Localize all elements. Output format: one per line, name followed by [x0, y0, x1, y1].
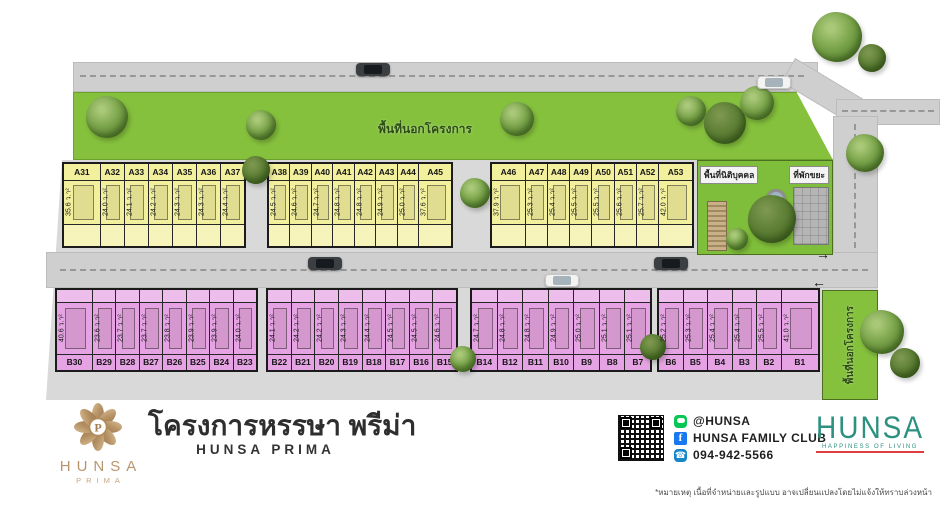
lot-id: B5: [684, 354, 708, 370]
lot-id: A46: [492, 164, 525, 181]
lot-B17[interactable]: 24.5 ว.า²B17: [385, 290, 409, 370]
lot-body: 23.6 ว.า²: [93, 303, 115, 354]
lot-driveway: [386, 290, 409, 303]
lot-area: 24.3 ว.า²: [173, 181, 183, 224]
lot-area: 24.5 ว.า²: [410, 303, 420, 354]
lot-body: 24.2 ว.า²: [292, 303, 315, 354]
lot-body: 42.0 ว.า²: [659, 181, 692, 224]
lot-A42[interactable]: A4224.8 ว.า²: [354, 164, 375, 246]
lot-driveway: [548, 224, 569, 246]
lot-B24[interactable]: 23.9 ว.า²B24: [209, 290, 232, 370]
car-icon: [308, 257, 342, 270]
lot-driveway: [163, 290, 185, 303]
lot-B29[interactable]: 23.6 ว.า²B29: [92, 290, 115, 370]
lot-area: 42.0 ว.า²: [659, 181, 669, 224]
lot-B19[interactable]: 24.3 ว.า²B19: [338, 290, 362, 370]
line-handle: @HUNSA: [693, 414, 750, 428]
lot-id: A40: [312, 164, 332, 181]
tree-icon: [246, 110, 276, 140]
lot-driveway: [570, 224, 591, 246]
outside-area-label-vertical: พื้นที่นอกโครงการ: [843, 306, 858, 384]
lot-body: 24.5 ว.า²: [410, 303, 433, 354]
line-icon: [674, 415, 687, 428]
lot-driveway: [64, 224, 100, 246]
lot-body: 24.8 ว.า²: [523, 303, 548, 354]
lot-area: 25.0 ว.า²: [574, 303, 584, 354]
lot-area: 24.6 ว.า²: [433, 303, 443, 354]
lot-body: 37.9 ว.า²: [492, 181, 525, 224]
lot-area: 41.0 ว.า²: [782, 303, 792, 354]
lot-area: 37.6 ว.า²: [419, 181, 429, 224]
tree-icon: [740, 86, 774, 120]
lot-A40[interactable]: A4024.7 ว.า²: [311, 164, 332, 246]
lot-id: A39: [290, 164, 310, 181]
lot-driveway: [625, 290, 650, 303]
lot-driveway: [101, 224, 124, 246]
lot-id: A47: [526, 164, 547, 181]
lot-area: 25.3 ว.า²: [684, 303, 694, 354]
lot-driveway: [116, 290, 138, 303]
lot-driveway: [292, 290, 315, 303]
lot-body: 25.0 ว.า²: [398, 181, 418, 224]
lot-driveway: [637, 224, 658, 246]
lot-driveway: [269, 224, 289, 246]
lot-group-b1: 40.6 ว.า²B3023.6 ว.า²B2923.7 ว.า²B2823.7…: [55, 288, 258, 372]
tree-icon: [858, 44, 886, 72]
tree-icon: [890, 348, 920, 378]
lot-id: B12: [498, 354, 523, 370]
lot-body: 35.6 ว.า²: [64, 181, 100, 224]
lot-A39[interactable]: A3924.6 ว.า²: [289, 164, 310, 246]
lot-body: 24.0 ว.า²: [234, 303, 256, 354]
brand-rule: [816, 451, 924, 453]
facebook-icon: f: [674, 432, 687, 445]
lot-area: 23.6 ว.า²: [93, 303, 103, 354]
lot-area: 25.4 ว.า²: [733, 303, 743, 354]
lot-area: 25.0 ว.า²: [398, 181, 408, 224]
lot-body: 24.7 ว.า²: [312, 181, 332, 224]
lot-B1[interactable]: 41.0 ว.า²B1: [781, 290, 818, 370]
lot-A51[interactable]: A5125.6 ว.า²: [614, 164, 636, 246]
lot-B12[interactable]: 24.8 ว.า²B12: [497, 290, 523, 370]
road-centerline: [60, 269, 868, 271]
lot-B28[interactable]: 23.7 ว.า²B28: [115, 290, 138, 370]
lot-id: A45: [419, 164, 451, 181]
lot-body: 25.4 ว.า²: [708, 303, 732, 354]
lot-area: 25.1 ว.า²: [600, 303, 610, 354]
lot-area: 24.7 ว.า²: [312, 181, 322, 224]
lot-area: 24.4 ว.า²: [363, 303, 373, 354]
lot-id: B20: [315, 354, 338, 370]
lot-id: B29: [93, 354, 115, 370]
lot-A32[interactable]: A3224.0 ว.า²: [100, 164, 124, 246]
lot-area: 25.5 ว.า²: [570, 181, 580, 224]
lot-body: 25.4 ว.า²: [733, 303, 757, 354]
lot-driveway: [523, 290, 548, 303]
lot-A44[interactable]: A4425.0 ว.า²: [397, 164, 418, 246]
lot-id: A36: [197, 164, 220, 181]
lot-body: 24.5 ว.า²: [386, 303, 409, 354]
lot-B23[interactable]: 24.0 ว.า²B23: [233, 290, 256, 370]
lot-driveway: [57, 290, 92, 303]
lot-driveway: [363, 290, 386, 303]
lot-A41[interactable]: A4124.8 ว.า²: [332, 164, 353, 246]
lot-id: A31: [64, 164, 100, 181]
lot-driveway: [757, 290, 781, 303]
lot-body: 24.9 ว.า²: [549, 303, 574, 354]
lot-area: 24.7 ว.า²: [472, 303, 482, 354]
road-centerline: [80, 75, 804, 77]
lot-A35[interactable]: A3524.3 ว.า²: [172, 164, 196, 246]
lot-driveway: [410, 290, 433, 303]
lot-body: 25.5 ว.า²: [570, 181, 591, 224]
top-road: [73, 62, 818, 92]
car-icon: [757, 76, 791, 89]
lot-driveway: [526, 224, 547, 246]
lot-body: 24.3 ว.า²: [197, 181, 220, 224]
lot-area: 23.9 ว.า²: [187, 303, 197, 354]
line-contact[interactable]: @HUNSA: [674, 414, 826, 428]
house-footprint-icon: [65, 308, 86, 349]
lot-B2[interactable]: 25.5 ว.า²B2: [756, 290, 781, 370]
lot-id: A44: [398, 164, 418, 181]
lot-id: B4: [708, 354, 732, 370]
phone-icon: ☎: [674, 449, 687, 462]
lot-area: 25.1 ว.า²: [625, 303, 635, 354]
lot-id: B3: [733, 354, 757, 370]
lot-driveway: [93, 290, 115, 303]
lot-body: 25.6 ว.า²: [615, 181, 636, 224]
lot-area: 24.9 ว.า²: [549, 303, 559, 354]
contact-list: @HUNSA f HUNSA FAMILY CLUB ☎ 094-942-556…: [674, 414, 826, 465]
lot-area: 24.0 ว.า²: [234, 303, 244, 354]
lot-body: 24.1 ว.า²: [125, 181, 148, 224]
lot-area: 23.9 ว.า²: [210, 303, 220, 354]
tree-icon: [242, 156, 270, 184]
lot-driveway: [782, 290, 818, 303]
lot-B30[interactable]: 40.6 ว.า²B30: [57, 290, 92, 370]
lot-driveway: [140, 290, 162, 303]
lot-B5[interactable]: 25.3 ว.า²B5: [683, 290, 708, 370]
lot-id: B27: [140, 354, 162, 370]
arrow-right-icon: →: [816, 247, 830, 261]
lot-area: 35.6 ว.า²: [64, 181, 74, 224]
hunsa-prima-logo: P HUNSA PRIMA: [52, 402, 144, 485]
lot-B18[interactable]: 24.4 ว.า²B18: [362, 290, 386, 370]
lot-body: 24.8 ว.า²: [333, 181, 353, 224]
lot-id: B6: [659, 354, 683, 370]
lot-id: B19: [339, 354, 362, 370]
garbage-pad: [793, 187, 829, 245]
lot-driveway: [659, 290, 683, 303]
lot-body: 24.8 ว.า²: [355, 181, 375, 224]
lot-id: B1: [782, 354, 818, 370]
lot-driveway: [574, 290, 599, 303]
lot-id: B18: [363, 354, 386, 370]
juristic-area-label: พื้นที่นิติบุคคล: [700, 166, 758, 184]
lot-id: B22: [268, 354, 291, 370]
lot-id: B23: [234, 354, 256, 370]
facebook-contact[interactable]: f HUNSA FAMILY CLUB: [674, 431, 826, 445]
lot-group-b2: 24.1 ว.า²B2224.2 ว.า²B2124.2 ว.า²B2024.3…: [266, 288, 458, 372]
lot-driveway: [472, 290, 497, 303]
qr-finder: [650, 417, 662, 429]
lot-area: 25.4 ว.า²: [548, 181, 558, 224]
lot-body: 24.2 ว.า²: [315, 303, 338, 354]
lot-B20[interactable]: 24.2 ว.า²B20: [314, 290, 338, 370]
lot-driveway: [615, 224, 636, 246]
lot-body: 24.0 ว.า²: [101, 181, 124, 224]
tree-icon: [704, 102, 746, 144]
tree-icon: [748, 195, 796, 243]
lot-area: 24.5 ว.า²: [386, 303, 396, 354]
lot-area: 24.2 ว.า²: [315, 303, 325, 354]
lot-area: 24.8 ว.า²: [355, 181, 365, 224]
lot-B10[interactable]: 24.9 ว.า²B10: [548, 290, 574, 370]
lot-area: 24.1 ว.า²: [125, 181, 135, 224]
lot-area: 24.9 ว.า²: [376, 181, 386, 224]
lot-A36[interactable]: A3624.3 ว.า²: [196, 164, 220, 246]
lot-B6[interactable]: 25.2 ว.า²B6: [659, 290, 683, 370]
phone-number: 094-942-5566: [693, 448, 774, 462]
lot-area: 25.6 ว.า²: [615, 181, 625, 224]
lot-A52[interactable]: A5225.7 ว.า²: [636, 164, 658, 246]
lot-A37[interactable]: A3724.4 ว.า²: [220, 164, 244, 246]
lot-body: 41.0 ว.า²: [782, 303, 818, 354]
house-footprint-icon: [790, 308, 812, 349]
lot-A45[interactable]: A4537.6 ว.า²: [418, 164, 451, 246]
lot-body: 23.9 ว.า²: [187, 303, 209, 354]
lot-id: A51: [615, 164, 636, 181]
lot-area: 25.5 ว.า²: [592, 181, 602, 224]
lot-area: 24.2 ว.า²: [149, 181, 159, 224]
lot-group-b4: 25.2 ว.า²B625.3 ว.า²B525.4 ว.า²B425.4 ว.…: [657, 288, 820, 372]
lot-id: B21: [292, 354, 315, 370]
lot-driveway: [498, 290, 523, 303]
lot-id: A38: [269, 164, 289, 181]
lot-body: 24.9 ว.า²: [376, 181, 396, 224]
house-footprint-icon: [73, 185, 94, 219]
lot-A49[interactable]: A4925.5 ว.า²: [569, 164, 591, 246]
house-footprint-icon: [427, 185, 446, 219]
house-footprint-icon: [667, 185, 687, 219]
lot-area: 23.8 ว.า²: [163, 303, 173, 354]
site-plan: พื้นที่นอกโครงการ พื้นที่นิติบุคคล ที่พั…: [0, 0, 940, 505]
lot-B22[interactable]: 24.1 ว.า²B22: [268, 290, 291, 370]
lot-driveway: [600, 290, 625, 303]
qr-code: [618, 415, 664, 461]
tree-icon: [860, 310, 904, 354]
lot-id: B30: [57, 354, 92, 370]
lot-area: 25.5 ว.า²: [757, 303, 767, 354]
lot-driveway: [659, 224, 692, 246]
lot-id: B24: [210, 354, 232, 370]
lot-driveway: [419, 224, 451, 246]
lot-body: 24.5 ว.า²: [269, 181, 289, 224]
lot-area: 24.8 ว.า²: [498, 303, 508, 354]
phone-contact[interactable]: ☎ 094-942-5566: [674, 448, 826, 462]
lot-A50[interactable]: A5025.5 ว.า²: [591, 164, 613, 246]
footer: P HUNSA PRIMA โครงการหรรษา พรีม่า HUNSA …: [0, 400, 940, 505]
lot-driveway: [549, 290, 574, 303]
lot-group-b3: 24.7 ว.า²B1424.8 ว.า²B1224.8 ว.า²B1124.9…: [470, 288, 652, 372]
lot-body: 25.3 ว.า²: [684, 303, 708, 354]
disclaimer-note: *หมายเหตุ เนื้อที่จำหน่ายและรูปแบบ อาจเป…: [655, 486, 932, 499]
lot-body: 25.2 ว.า²: [659, 303, 683, 354]
lot-id: A50: [592, 164, 613, 181]
lot-body: 24.6 ว.า²: [433, 303, 456, 354]
flower-logo-icon: P: [67, 402, 129, 452]
qr-finder: [620, 447, 632, 459]
lot-body: 25.5 ว.า²: [592, 181, 613, 224]
lot-id: B2: [757, 354, 781, 370]
lot-driveway: [173, 224, 196, 246]
lot-A47[interactable]: A4725.3 ว.า²: [525, 164, 547, 246]
lot-driveway: [708, 290, 732, 303]
lot-A53[interactable]: A5342.0 ว.า²: [658, 164, 692, 246]
lot-body: 40.6 ว.า²: [57, 303, 92, 354]
lot-driveway: [398, 224, 418, 246]
lot-driveway: [333, 224, 353, 246]
lot-area: 37.9 ว.า²: [492, 181, 502, 224]
lot-area: 24.8 ว.า²: [523, 303, 533, 354]
road-centerline: [842, 110, 934, 112]
lot-id: B16: [410, 354, 433, 370]
lot-driveway: [268, 290, 291, 303]
lot-body: 24.7 ว.า²: [472, 303, 497, 354]
facebook-page-name: HUNSA FAMILY CLUB: [693, 431, 826, 445]
lot-area: 25.3 ว.า²: [526, 181, 536, 224]
lot-A43[interactable]: A4324.9 ว.า²: [375, 164, 396, 246]
lot-A34[interactable]: A3424.2 ว.า²: [148, 164, 172, 246]
lot-area: 24.4 ว.า²: [221, 181, 231, 224]
lot-driveway: [312, 224, 332, 246]
lot-area: 25.7 ว.า²: [637, 181, 647, 224]
lot-area: 40.6 ว.า²: [57, 303, 67, 354]
garbage-area-label: ที่พักขยะ: [789, 166, 829, 184]
lot-area: 24.3 ว.า²: [197, 181, 207, 224]
arrow-left-icon: ←: [812, 275, 826, 289]
tree-icon: [460, 178, 490, 208]
lot-body: 25.3 ว.า²: [526, 181, 547, 224]
lot-body: 24.1 ว.า²: [268, 303, 291, 354]
lot-A33[interactable]: A3324.1 ว.า²: [124, 164, 148, 246]
lot-driveway: [339, 290, 362, 303]
lot-B4[interactable]: 25.4 ว.า²B4: [707, 290, 732, 370]
lot-driveway: [197, 224, 220, 246]
lot-id: A35: [173, 164, 196, 181]
lot-B8[interactable]: 25.1 ว.า²B8: [599, 290, 625, 370]
car-icon: [654, 257, 688, 270]
lot-group-a3: A4637.9 ว.า²A4725.3 ว.า²A4825.4 ว.า²A492…: [490, 162, 694, 248]
lot-id: A37: [221, 164, 244, 181]
lot-area: 24.3 ว.า²: [339, 303, 349, 354]
lot-area: 25.4 ว.า²: [708, 303, 718, 354]
lot-B3[interactable]: 25.4 ว.า²B3: [732, 290, 757, 370]
lot-area: 24.0 ว.า²: [101, 181, 111, 224]
lot-driveway: [315, 290, 338, 303]
lot-id: A41: [333, 164, 353, 181]
lot-id: A32: [101, 164, 124, 181]
brand-name: HUNSA: [816, 410, 924, 446]
lot-driveway: [290, 224, 310, 246]
lot-driveway: [210, 290, 232, 303]
lot-group-a1: A3135.6 ว.า²A3224.0 ว.า²A3324.1 ว.า²A342…: [62, 162, 246, 248]
lot-area: 23.7 ว.า²: [140, 303, 150, 354]
tree-icon: [676, 96, 706, 126]
lot-B11[interactable]: 24.8 ว.า²B11: [522, 290, 548, 370]
lot-id: A53: [659, 164, 692, 181]
lot-B21[interactable]: 24.2 ว.า²B21: [291, 290, 315, 370]
lot-area: 24.6 ว.า²: [290, 181, 300, 224]
lot-id: A33: [125, 164, 148, 181]
lot-id: B8: [600, 354, 625, 370]
lot-driveway: [234, 290, 256, 303]
lot-area: 24.2 ว.า²: [292, 303, 302, 354]
lot-A31[interactable]: A3135.6 ว.า²: [64, 164, 100, 246]
lot-driveway: [149, 224, 172, 246]
lot-A38[interactable]: A3824.5 ว.า²: [269, 164, 289, 246]
lot-driveway: [733, 290, 757, 303]
logo-monogram: P: [94, 421, 101, 435]
lot-area: 24.5 ว.า²: [269, 181, 279, 224]
tree-icon: [846, 134, 884, 172]
qr-finder: [620, 417, 632, 429]
lot-body: 24.4 ว.า²: [221, 181, 244, 224]
lot-B25[interactable]: 23.9 ว.า²B25: [186, 290, 209, 370]
lot-driveway: [433, 290, 456, 303]
logo-submark: PRIMA: [52, 476, 144, 485]
lot-id: B28: [116, 354, 138, 370]
car-icon: [356, 63, 390, 76]
tree-icon: [500, 102, 534, 136]
lot-body: 24.4 ว.า²: [363, 303, 386, 354]
lot-body: 25.5 ว.า²: [757, 303, 781, 354]
lot-id: B17: [386, 354, 409, 370]
lot-id: A34: [149, 164, 172, 181]
lot-id: A52: [637, 164, 658, 181]
lot-body: 25.0 ว.า²: [574, 303, 599, 354]
lot-id: A42: [355, 164, 375, 181]
lot-body: 24.3 ว.า²: [173, 181, 196, 224]
lot-id: B25: [187, 354, 209, 370]
lot-id: A49: [570, 164, 591, 181]
tree-icon: [812, 12, 862, 62]
project-title-english: HUNSA PRIMA: [148, 442, 383, 457]
lot-A46[interactable]: A4637.9 ว.า²: [492, 164, 525, 246]
lot-driveway: [355, 224, 375, 246]
lot-id: B9: [574, 354, 599, 370]
lot-area: 24.1 ว.า²: [268, 303, 278, 354]
lot-body: 25.1 ว.า²: [600, 303, 625, 354]
lot-group-a2: A3824.5 ว.า²A3924.6 ว.า²A4024.7 ว.า²A412…: [267, 162, 453, 248]
lot-body: 24.8 ว.า²: [498, 303, 523, 354]
hunsa-brand-logo: HUNSA HAPPINESS OF LIVING: [816, 410, 924, 453]
lot-B9[interactable]: 25.0 ว.า²B9: [573, 290, 599, 370]
lot-A48[interactable]: A4825.4 ว.า²: [547, 164, 569, 246]
lot-body: 24.3 ว.า²: [339, 303, 362, 354]
lot-B26[interactable]: 23.8 ว.า²B26: [162, 290, 185, 370]
lot-body: 23.7 ว.า²: [140, 303, 162, 354]
lot-body: 24.2 ว.า²: [149, 181, 172, 224]
lot-id: A43: [376, 164, 396, 181]
lot-B16[interactable]: 24.5 ว.า²B16: [409, 290, 433, 370]
lot-id: B26: [163, 354, 185, 370]
lot-driveway: [684, 290, 708, 303]
lot-B27[interactable]: 23.7 ว.า²B27: [139, 290, 162, 370]
logo-wordmark: HUNSA: [52, 458, 144, 475]
lot-area: 24.8 ว.า²: [333, 181, 343, 224]
